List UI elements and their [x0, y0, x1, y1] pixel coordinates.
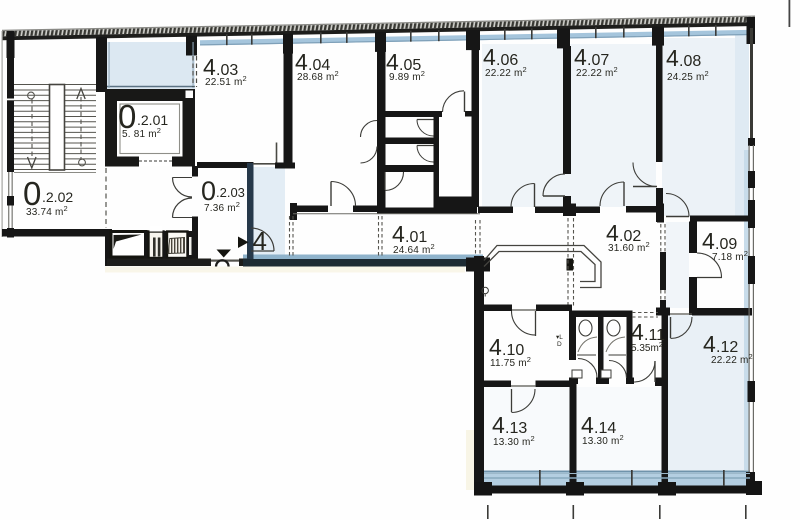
svg-text:.08: .08	[679, 53, 701, 70]
svg-text:22.22 m2: 22.22 m2	[711, 352, 753, 366]
svg-text:.01: .01	[405, 229, 427, 246]
svg-text:4: 4	[483, 44, 496, 70]
svg-text:24.25 m2: 24.25 m2	[667, 69, 709, 83]
svg-text:9.89 m2: 9.89 m2	[389, 69, 425, 83]
svg-text:13.30 m2: 13.30 m2	[493, 434, 535, 448]
svg-text:0: 0	[201, 176, 216, 206]
svg-text:5. 81 m2: 5. 81 m2	[122, 126, 161, 140]
svg-text:4: 4	[253, 226, 267, 256]
svg-text:24.64 m2: 24.64 m2	[393, 242, 435, 256]
svg-text:.13: .13	[505, 420, 527, 437]
svg-text:4: 4	[631, 319, 644, 345]
svg-text:7.36 m2: 7.36 m2	[204, 200, 240, 214]
svg-text:4: 4	[574, 44, 587, 70]
svg-text:4: 4	[489, 334, 502, 360]
svg-text:7.18 m2: 7.18 m2	[712, 249, 748, 263]
svg-text:22.22 m2: 22.22 m2	[576, 65, 618, 79]
svg-text:5.35m2: 5.35m2	[631, 340, 663, 354]
svg-text:.14: .14	[594, 420, 616, 437]
svg-text:4: 4	[392, 221, 405, 247]
svg-text:13.30 m2: 13.30 m2	[582, 433, 624, 447]
svg-text:.2.03: .2.03	[216, 185, 245, 200]
svg-text:4: 4	[581, 412, 594, 438]
svg-text:4: 4	[702, 228, 715, 254]
svg-text:.07: .07	[587, 52, 609, 69]
svg-text:.09: .09	[715, 236, 737, 253]
svg-text:28.68 m2: 28.68 m2	[297, 69, 339, 83]
svg-text:11.75 m2: 11.75 m2	[490, 355, 531, 369]
svg-text:4: 4	[492, 412, 505, 438]
svg-text:.2.02: .2.02	[42, 189, 73, 205]
svg-text:.10: .10	[502, 342, 524, 359]
svg-text:4: 4	[666, 45, 679, 71]
svg-text:33.74 m2: 33.74 m2	[26, 204, 68, 218]
svg-text:D: D	[557, 341, 562, 348]
svg-text:▾L: ▾L	[556, 334, 563, 341]
svg-text:22.51 m2: 22.51 m2	[205, 74, 247, 88]
svg-text:.06: .06	[496, 52, 518, 69]
svg-text:22.22 m2: 22.22 m2	[485, 65, 527, 79]
svg-text:31.60 m2: 31.60 m2	[608, 240, 650, 254]
svg-text:4: 4	[703, 331, 716, 357]
svg-text:.12: .12	[716, 339, 738, 356]
svg-text:.2.01: .2.01	[137, 112, 168, 128]
